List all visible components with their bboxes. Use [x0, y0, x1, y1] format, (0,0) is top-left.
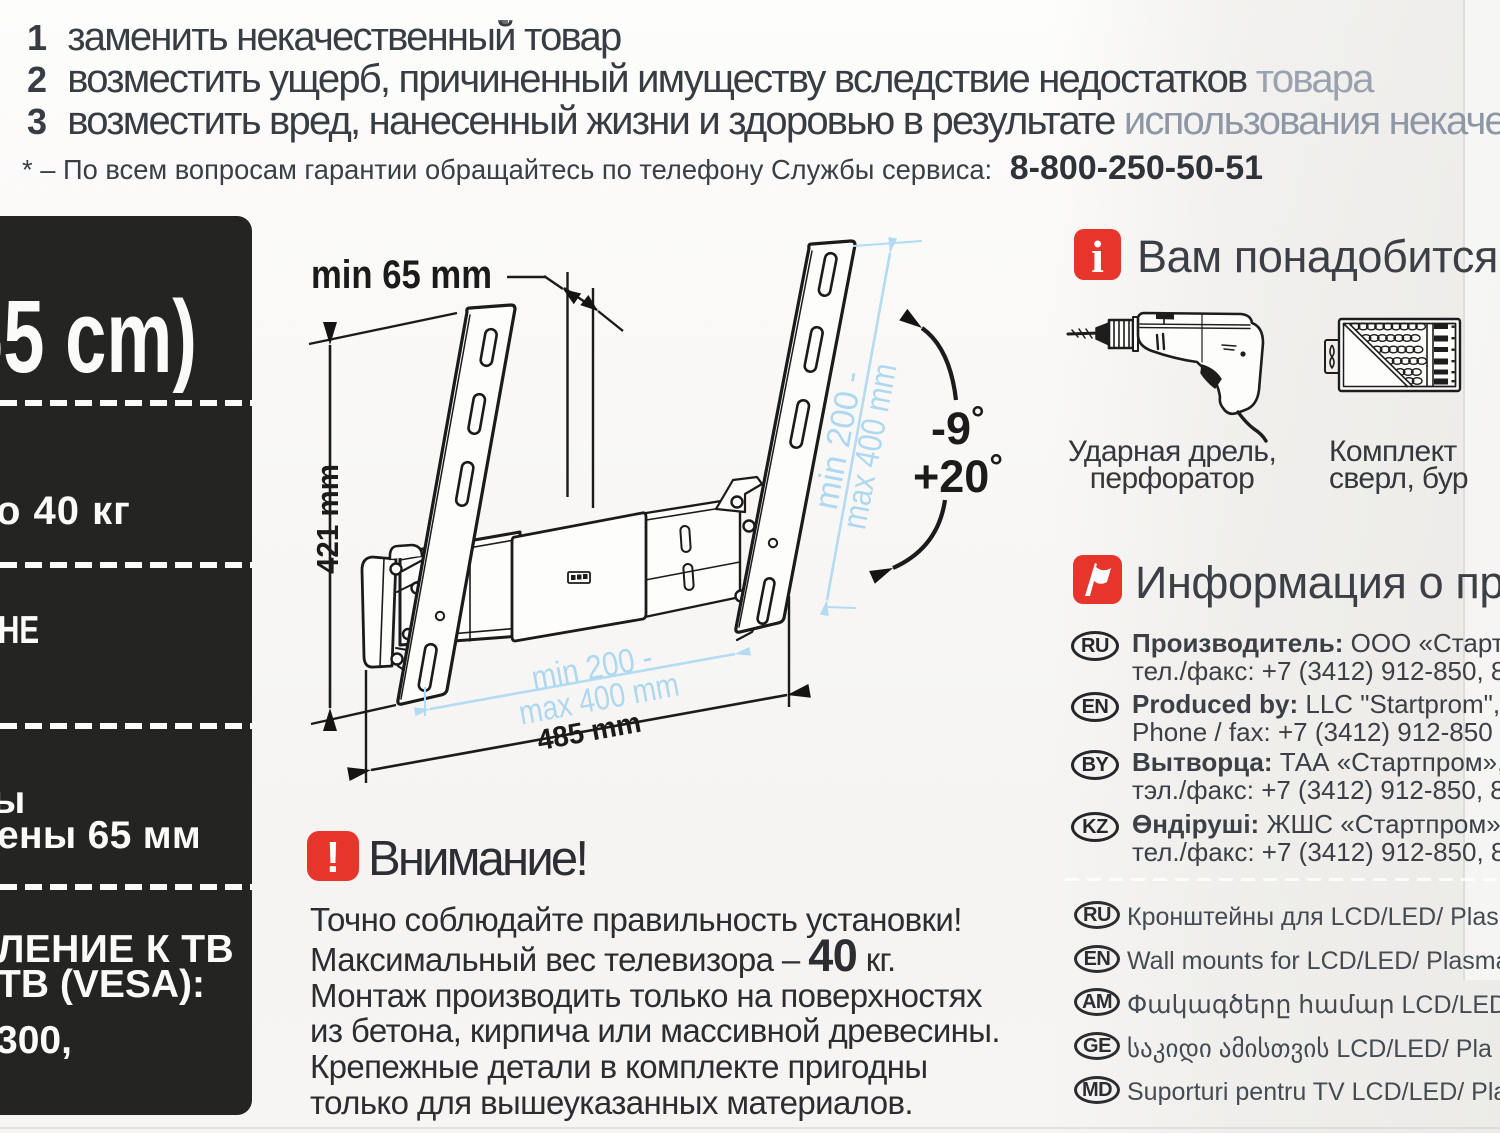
svg-text:+20°: +20°: [913, 448, 1003, 502]
svg-text:421 mm: 421 mm: [310, 464, 345, 574]
svg-text:min 65 mm: min 65 mm: [311, 253, 492, 297]
svg-text:-9°: -9°: [931, 400, 985, 454]
